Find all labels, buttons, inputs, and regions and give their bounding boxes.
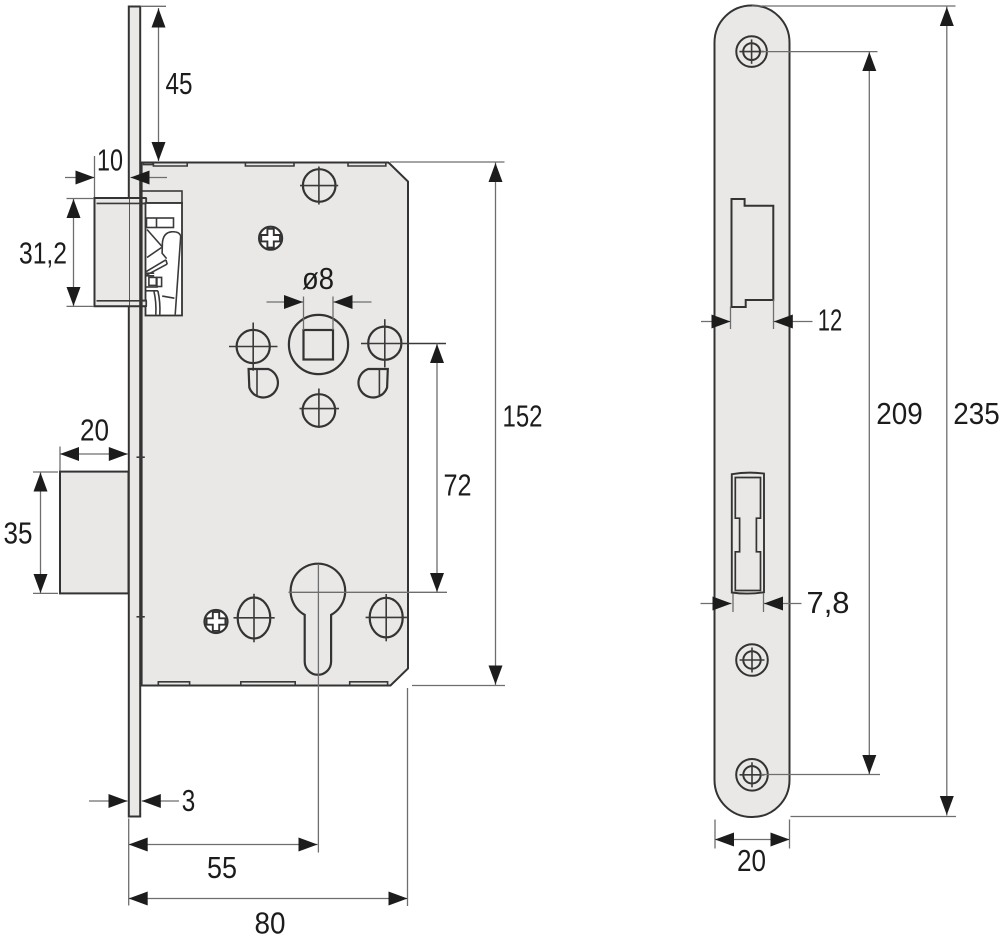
svg-text:20: 20 bbox=[80, 412, 109, 447]
svg-text:80: 80 bbox=[255, 905, 286, 938]
svg-text:72: 72 bbox=[444, 467, 472, 502]
svg-text:10: 10 bbox=[97, 142, 123, 177]
svg-text:152: 152 bbox=[503, 398, 543, 433]
svg-text:209: 209 bbox=[876, 396, 923, 431]
svg-text:45: 45 bbox=[166, 66, 193, 101]
svg-text:12: 12 bbox=[818, 302, 843, 337]
svg-text:ø8: ø8 bbox=[302, 261, 334, 296]
svg-text:20: 20 bbox=[737, 843, 766, 878]
svg-text:35: 35 bbox=[4, 515, 33, 550]
svg-text:55: 55 bbox=[207, 850, 237, 885]
svg-text:31,2: 31,2 bbox=[19, 235, 67, 270]
svg-text:3: 3 bbox=[182, 783, 196, 818]
svg-text:7,8: 7,8 bbox=[807, 585, 850, 620]
svg-text:235: 235 bbox=[953, 396, 1000, 431]
